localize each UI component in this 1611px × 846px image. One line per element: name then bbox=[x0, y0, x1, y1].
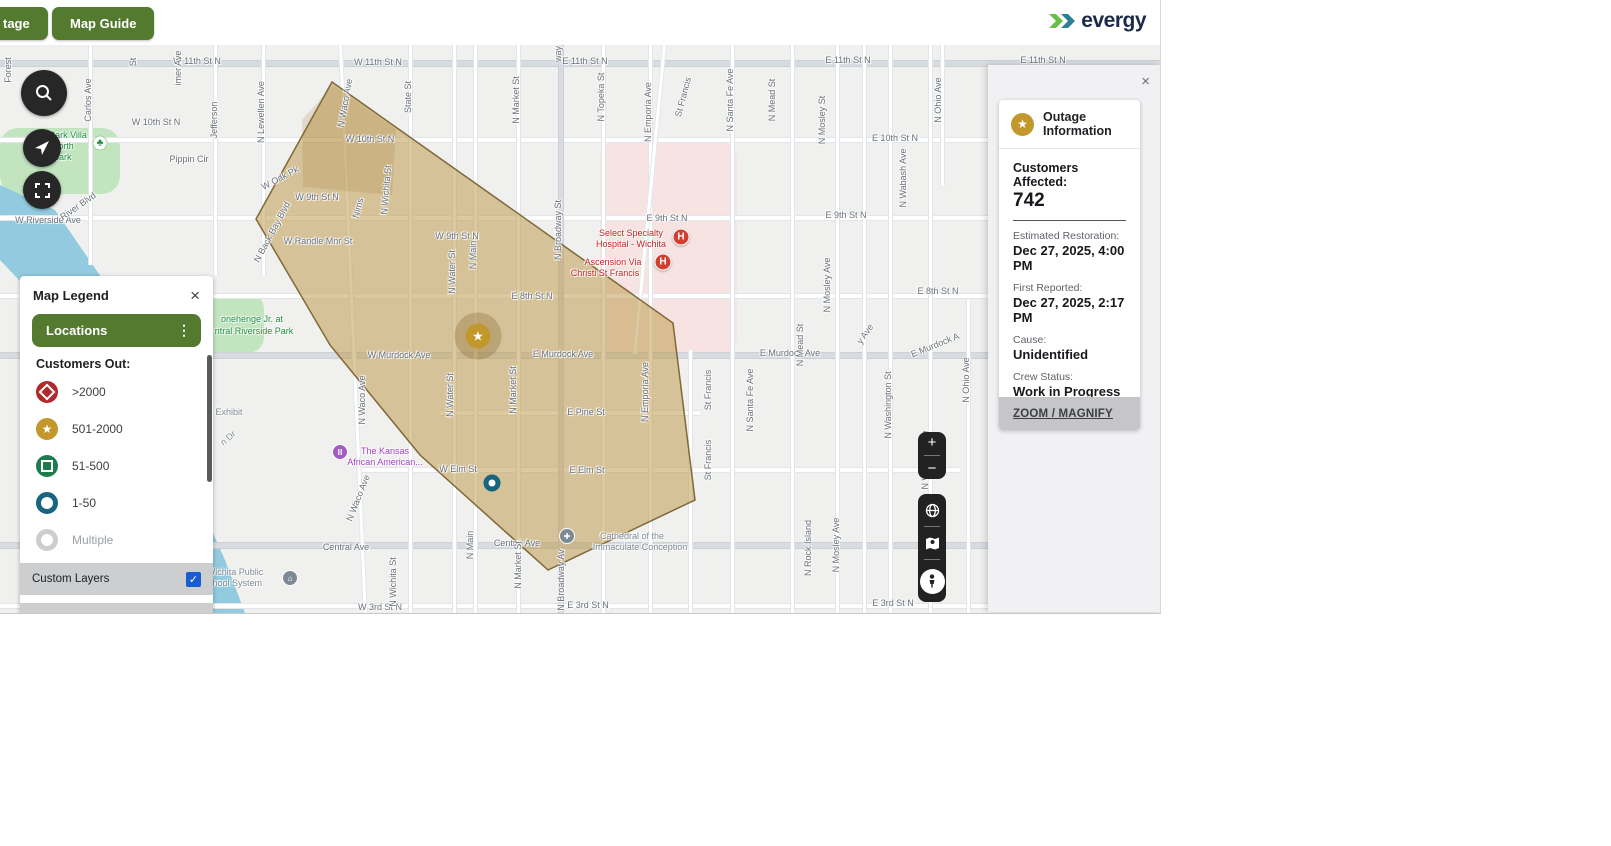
legend-item: 1-50 bbox=[20, 488, 213, 518]
star-legend-icon: ★ bbox=[36, 418, 58, 440]
field-label: Cause: bbox=[1013, 334, 1126, 346]
locations-label: Locations bbox=[46, 323, 107, 338]
evergy-chevrons-icon bbox=[1049, 11, 1079, 31]
map-legend-panel: Map Legend × Locations ⋮ Customers Out: … bbox=[20, 276, 213, 613]
card-footer: ZOOM / MAGNIFY bbox=[999, 397, 1140, 430]
top-bar: tage Map Guide evergy bbox=[0, 0, 1160, 45]
hospital-marker[interactable]: H bbox=[673, 229, 690, 246]
legend-close-icon[interactable]: × bbox=[190, 287, 200, 304]
field-value: Dec 27, 2025, 2:17 PM bbox=[1013, 295, 1126, 325]
service-area-row: Service Area ✓ bbox=[20, 603, 213, 613]
legend-item: ★501-2000 bbox=[20, 414, 213, 444]
custom-layers-checkbox[interactable]: ✓ bbox=[186, 572, 201, 587]
locations-dropdown-button[interactable]: Locations ⋮ bbox=[32, 314, 201, 347]
map-tools-control bbox=[918, 494, 946, 602]
field-value: Dec 27, 2025, 4:00 PM bbox=[1013, 243, 1126, 273]
legend-item-label: Multiple bbox=[72, 533, 113, 547]
zoom-magnify-link[interactable]: ZOOM / MAGNIFY bbox=[1013, 408, 1113, 420]
outage-circle-marker-1-50[interactable] bbox=[484, 475, 501, 492]
field-label: First Reported: bbox=[1013, 282, 1126, 294]
legend-title: Map Legend bbox=[33, 288, 109, 303]
field-label: Crew Status: bbox=[1013, 371, 1126, 383]
report-outage-button-partial[interactable]: tage bbox=[0, 7, 48, 40]
legend-item: Multiple bbox=[20, 525, 213, 555]
zoom-in-button[interactable]: + bbox=[918, 435, 946, 450]
outage-map-app: tage Map Guide evergy bbox=[0, 0, 1161, 614]
brand-name: evergy bbox=[1081, 9, 1146, 33]
zoom-out-button[interactable]: − bbox=[918, 461, 946, 476]
evergy-logo: evergy bbox=[1049, 9, 1146, 33]
navigation-arrow-icon bbox=[34, 140, 50, 156]
outage-star-marker-501-2000[interactable]: ★ bbox=[466, 324, 491, 349]
school-marker[interactable]: ⌂ bbox=[282, 570, 298, 586]
outage-star-icon: ★ bbox=[1011, 113, 1034, 136]
legend-item-label: 1-50 bbox=[72, 496, 96, 510]
museum-marker[interactable]: Ⅲ bbox=[332, 444, 348, 460]
panel-close-icon[interactable]: × bbox=[1141, 73, 1150, 90]
layers-button[interactable] bbox=[925, 536, 940, 551]
customers-affected-label: Customers Affected: bbox=[1013, 161, 1126, 189]
field-value: Unidentified bbox=[1013, 347, 1126, 362]
cathedral-marker[interactable]: ✚ bbox=[559, 528, 575, 544]
field-label: Estimated Restoration: bbox=[1013, 230, 1126, 242]
legend-item-label: 501-2000 bbox=[72, 422, 123, 436]
zoom-control: + − bbox=[918, 432, 946, 479]
map-guide-button[interactable]: Map Guide bbox=[52, 7, 154, 40]
outage-info-card: ★ Outage Information Customers Affected:… bbox=[999, 100, 1140, 430]
outage-info-title: Outage Information bbox=[1043, 110, 1128, 138]
hospital-marker[interactable]: H bbox=[655, 254, 672, 271]
map-type-button[interactable] bbox=[925, 503, 940, 518]
custom-layers-row: Custom Layers ✓ bbox=[20, 563, 213, 595]
square-legend-icon bbox=[36, 455, 58, 477]
ring-legend-icon bbox=[36, 492, 58, 514]
customers-affected-value: 742 bbox=[1013, 190, 1126, 212]
legend-item: >2000 bbox=[20, 377, 213, 407]
street-view-pegman-button[interactable] bbox=[920, 569, 945, 594]
fullscreen-icon bbox=[35, 183, 50, 198]
park-marker[interactable]: ♣ bbox=[93, 136, 108, 151]
custom-layers-label: Custom Layers bbox=[32, 573, 109, 585]
search-icon bbox=[34, 83, 54, 103]
ring-legend-icon bbox=[36, 529, 58, 551]
legend-scrollbar[interactable] bbox=[207, 355, 212, 482]
fullscreen-button[interactable] bbox=[23, 171, 61, 209]
customers-out-heading: Customers Out: bbox=[36, 357, 213, 371]
my-location-button[interactable] bbox=[23, 129, 61, 167]
map-canvas[interactable]: W 11th St NW 11th St NE 11th St NE 11th … bbox=[0, 45, 1160, 613]
legend-item: 51-500 bbox=[20, 451, 213, 481]
globe-icon bbox=[925, 503, 940, 518]
legend-item-label: >2000 bbox=[72, 385, 106, 399]
search-button[interactable] bbox=[21, 70, 67, 116]
kebab-menu-icon[interactable]: ⋮ bbox=[177, 322, 191, 339]
map-icon bbox=[925, 536, 940, 551]
legend-item-label: 51-500 bbox=[72, 459, 109, 473]
outage-side-panel: × ★ Outage Information Customers Affecte… bbox=[988, 65, 1160, 612]
diamond-legend-icon bbox=[36, 381, 58, 403]
pegman-icon bbox=[926, 574, 938, 588]
